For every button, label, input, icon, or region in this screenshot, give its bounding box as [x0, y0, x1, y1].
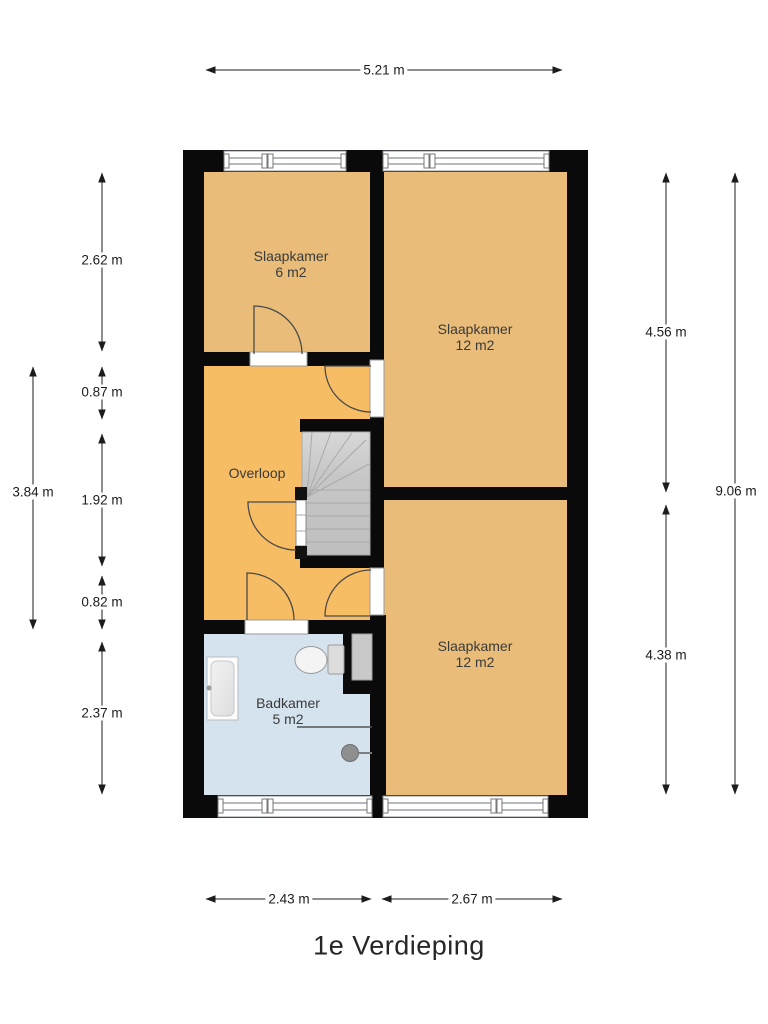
room-name: Overloop: [229, 465, 286, 481]
dim-label-top: 5.21 m: [360, 63, 407, 78]
room-area: 5 m2: [256, 711, 320, 727]
room-label-badkamer: Badkamer 5 m2: [256, 695, 320, 727]
door-jamb-slaapkamer-tr: [370, 360, 384, 417]
floor-plan-page: Slaapkamer 6 m2 Slaapkamer 12 m2 Overloo…: [0, 0, 768, 1024]
room-name: Slaapkamer: [438, 638, 513, 654]
railing-post-bottom: [295, 546, 307, 559]
window-bottom-left: [218, 796, 372, 817]
room-label-slaapkamer-tr: Slaapkamer 12 m2: [438, 321, 513, 353]
dim-label-bottom-1: 2.43 m: [265, 892, 312, 907]
dim-label-bottom-2: 2.67 m: [448, 892, 495, 907]
room-area: 12 m2: [438, 654, 513, 670]
dim-label-left-5: 2.37 m: [78, 706, 125, 721]
dim-label-right-2: 4.38 m: [642, 648, 689, 663]
window-top-left: [224, 151, 346, 171]
dim-label-left-3: 1.92 m: [78, 493, 125, 508]
door-jamb-badkamer: [245, 620, 308, 634]
dim-label-left-4: 0.82 m: [78, 595, 125, 610]
dim-label-right-total: 9.06 m: [712, 484, 759, 499]
bathtub: [207, 657, 239, 720]
dim-label-left-2: 0.87 m: [78, 385, 125, 400]
staircase: [295, 432, 370, 559]
dim-label-left-total: 3.84 m: [9, 485, 56, 500]
room-name: Slaapkamer: [254, 248, 329, 264]
room-area: 6 m2: [254, 264, 329, 280]
page-title: 1e Verdieping: [313, 931, 485, 962]
room-label-slaapkamer-br: Slaapkamer 12 m2: [438, 638, 513, 670]
dim-label-right-1: 4.56 m: [642, 325, 689, 340]
door-jamb-slaapkamer-br: [370, 568, 384, 615]
room-name: Badkamer: [256, 695, 320, 711]
window-bottom-right: [383, 796, 548, 817]
room-area: 12 m2: [438, 337, 513, 353]
toilet: [295, 645, 344, 674]
room-name: Slaapkamer: [438, 321, 513, 337]
stair-railing: [296, 500, 306, 546]
room-label-overloop: Overloop: [229, 465, 286, 481]
closet: [352, 634, 372, 680]
door-jamb-slaapkamer-tl: [250, 352, 307, 366]
room-label-slaapkamer-tl: Slaapkamer 6 m2: [254, 248, 329, 280]
dim-label-left-1: 2.62 m: [78, 253, 125, 268]
floor-plan-drawing: [0, 0, 768, 1024]
railing-post-top: [295, 487, 307, 500]
window-top-right: [383, 151, 549, 171]
